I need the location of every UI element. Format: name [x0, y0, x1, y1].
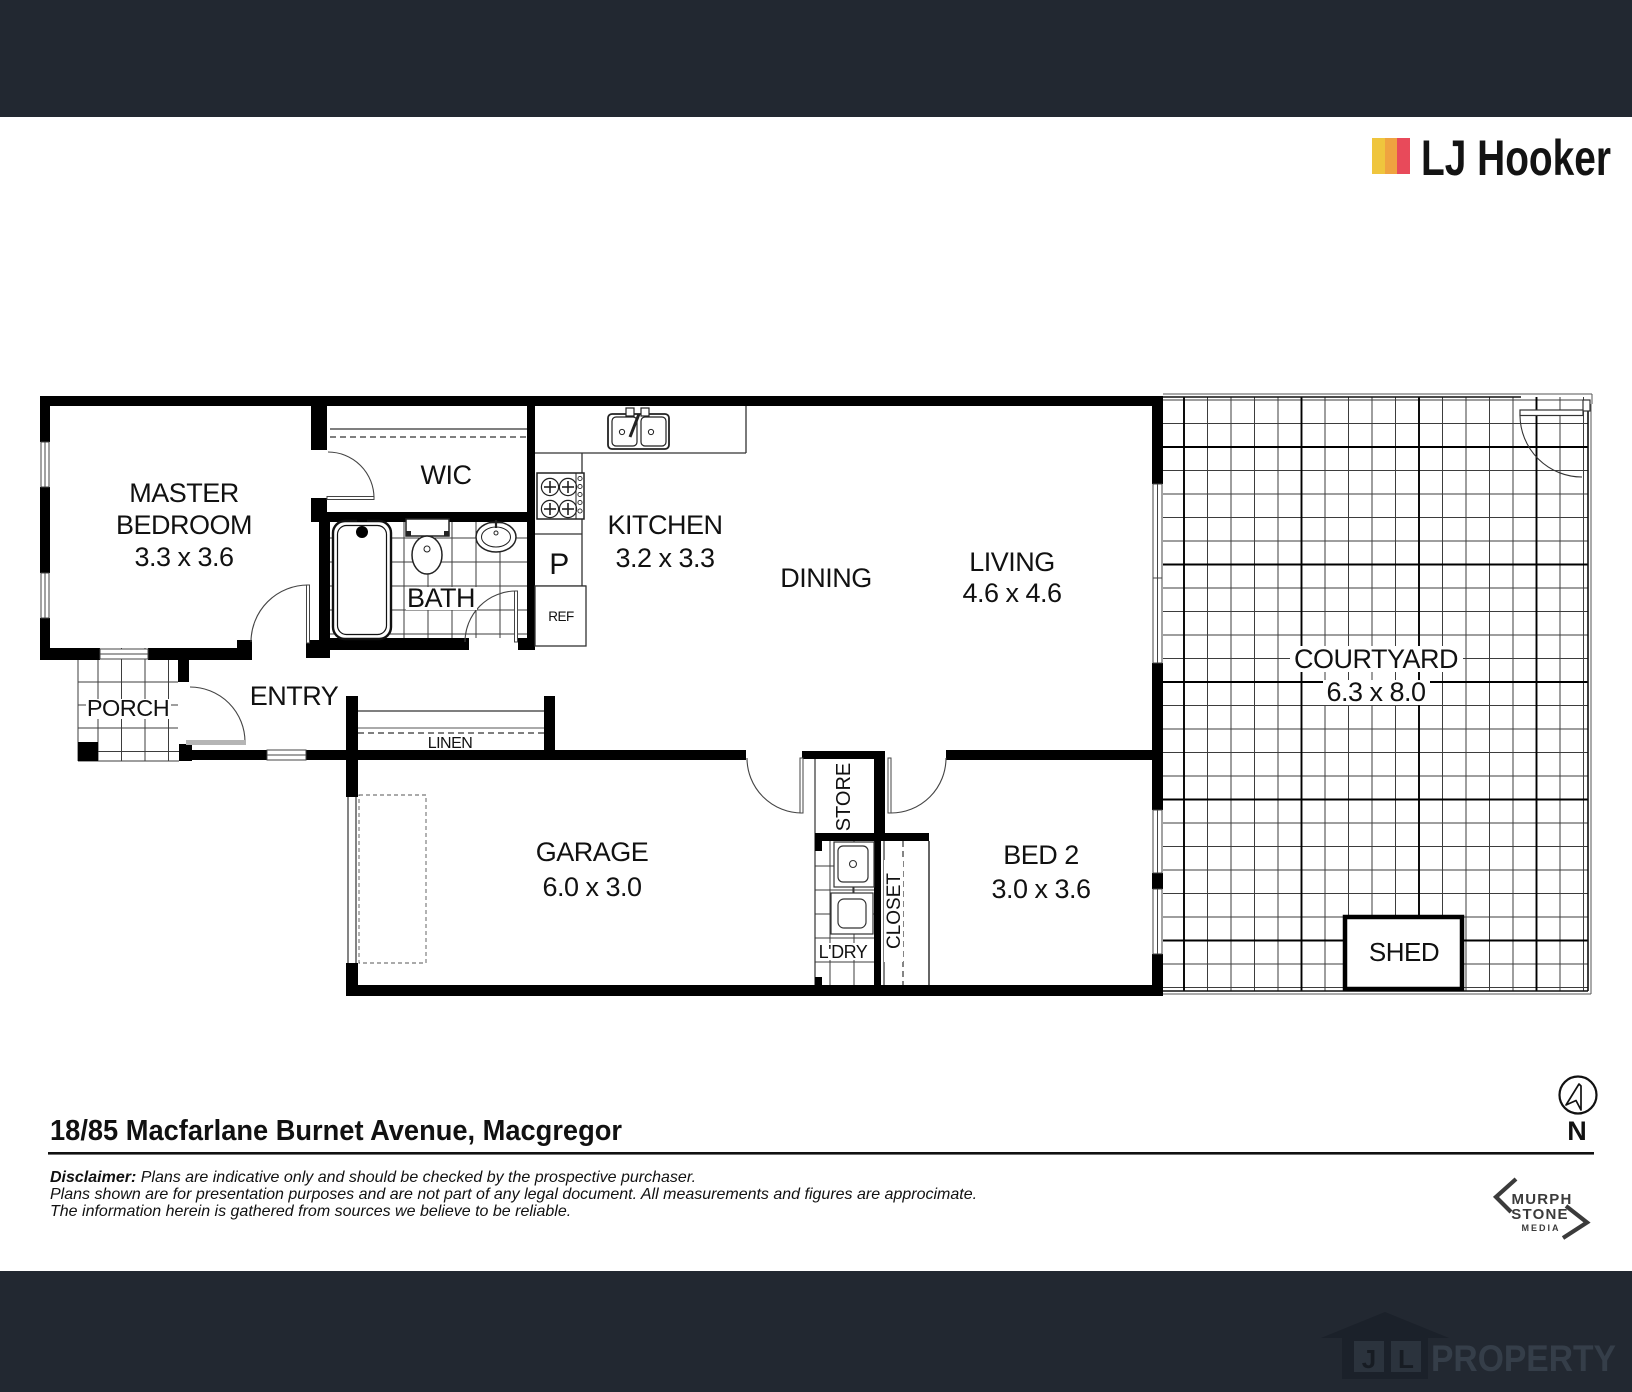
svg-text:PORCH: PORCH — [87, 695, 169, 721]
svg-text:L'DRY: L'DRY — [819, 942, 868, 962]
svg-text:PROPERTY: PROPERTY — [1431, 1338, 1616, 1379]
svg-text:18/85 Macfarlane Burnet Avenue: 18/85 Macfarlane Burnet Avenue, Macgrego… — [50, 1115, 622, 1147]
svg-text:LJ Hooker: LJ Hooker — [1421, 130, 1611, 186]
svg-text:MASTER: MASTER — [129, 478, 239, 508]
svg-text:6.3 x 8.0: 6.3 x 8.0 — [1326, 677, 1425, 707]
svg-text:L: L — [1398, 1344, 1414, 1374]
svg-text:Plans shown are for presentati: Plans shown are for presentation purpose… — [50, 1186, 977, 1203]
svg-text:3.0 x 3.6: 3.0 x 3.6 — [991, 874, 1090, 904]
svg-text:N: N — [1567, 1116, 1587, 1146]
svg-text:BEDROOM: BEDROOM — [116, 510, 252, 540]
svg-text:3.3 x 3.6: 3.3 x 3.6 — [134, 542, 233, 572]
svg-text:J: J — [1362, 1344, 1376, 1374]
svg-text:P: P — [549, 548, 569, 581]
svg-text:REF: REF — [548, 609, 574, 624]
svg-text:MEDIA: MEDIA — [1522, 1223, 1561, 1233]
svg-text:CLOSET: CLOSET — [884, 873, 905, 949]
svg-text:LIVING: LIVING — [969, 547, 1055, 577]
svg-text:COURTYARD: COURTYARD — [1294, 644, 1458, 674]
svg-text:BED 2: BED 2 — [1003, 840, 1079, 870]
svg-text:LINEN: LINEN — [428, 735, 473, 752]
svg-text:WIC: WIC — [421, 460, 472, 490]
svg-text:The information herein is gath: The information herein is gathered from … — [50, 1203, 571, 1220]
svg-text:6.0 x 3.0: 6.0 x 3.0 — [542, 872, 641, 902]
svg-text:BATH: BATH — [407, 583, 475, 613]
svg-text:4.6 x 4.6: 4.6 x 4.6 — [962, 578, 1061, 608]
svg-text:3.2 x 3.3: 3.2 x 3.3 — [615, 543, 714, 573]
svg-text:KITCHEN: KITCHEN — [607, 510, 722, 540]
svg-text:STORE: STORE — [833, 763, 855, 832]
svg-text:Disclaimer: Plans are indicati: Disclaimer: Plans are indicative only an… — [50, 1169, 696, 1186]
svg-text:STONE: STONE — [1511, 1206, 1568, 1223]
svg-text:DINING: DINING — [780, 563, 872, 593]
svg-text:GARAGE: GARAGE — [536, 837, 649, 867]
svg-text:ENTRY: ENTRY — [250, 681, 339, 711]
svg-text:SHED: SHED — [1369, 937, 1439, 967]
